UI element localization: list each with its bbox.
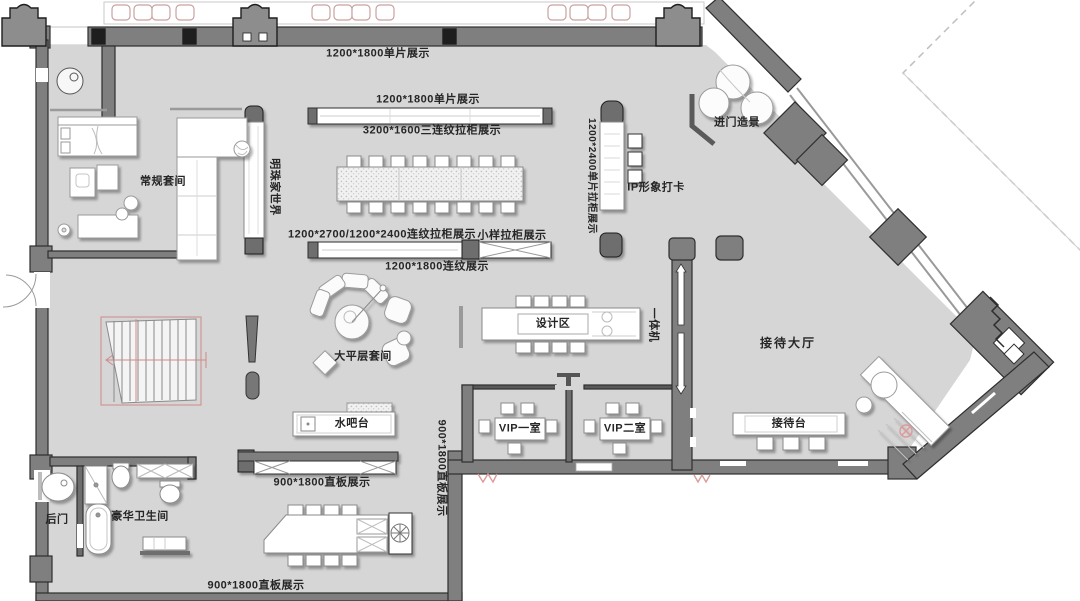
display-unit-top [308, 108, 552, 124]
label-water-bar: 水吧台 [335, 419, 370, 430]
label-single-panel-cabinet: 1200*2400单片拉柜展示 [586, 118, 596, 234]
label-grain-display: 1200*1800连纹展示 [385, 262, 489, 273]
label-top-single-panel: 1200*1800单片展示 [326, 49, 430, 60]
label-pearl-home-world: 明珠家世界 [269, 158, 280, 216]
label-triple-grain: 3200*1600三连纹拉柜展示 [363, 126, 501, 137]
label-combo-grain: 1200*2700/1200*2400连纹拉柜展示 [288, 230, 476, 241]
label-design-area: 设计区 [536, 319, 571, 330]
label-entrance-scene: 进门造景 [714, 118, 760, 129]
floor-plan: 1200*1800单片展示 1200*1800单片展示 3200*1600三连纹… [0, 0, 1080, 601]
label-penthouse-suite: 大平层套间 [334, 352, 392, 363]
label-all-in-one: 一体机 [648, 308, 659, 343]
label-vip-room-2: VIP二室 [604, 424, 646, 435]
label-regular-suite: 常规套间 [140, 177, 186, 188]
label-reception-hall: 接待大厅 [760, 337, 816, 349]
label-straight-board-mid: 900*1800直板展示 [273, 478, 370, 489]
label-mid-single-panel: 1200*1800单片展示 [376, 95, 480, 106]
label-straight-board-side: 900*1800直板展示 [436, 419, 447, 516]
label-back-door: 后门 [46, 515, 69, 526]
label-sample-cabinet: 小样拉柜展示 [478, 231, 547, 242]
label-ip-photo-checkin: IP形象打卡 [627, 183, 684, 194]
label-luxury-bathroom: 豪华卫生间 [111, 512, 169, 523]
straight-board-display [238, 450, 398, 474]
label-straight-board-bottom: 900*1800直板展示 [207, 581, 304, 592]
column-symbol [57, 68, 83, 94]
label-vip-room-1: VIP一室 [499, 424, 541, 435]
label-reception-desk: 接待台 [772, 419, 807, 430]
display-unit-mid [308, 240, 551, 259]
